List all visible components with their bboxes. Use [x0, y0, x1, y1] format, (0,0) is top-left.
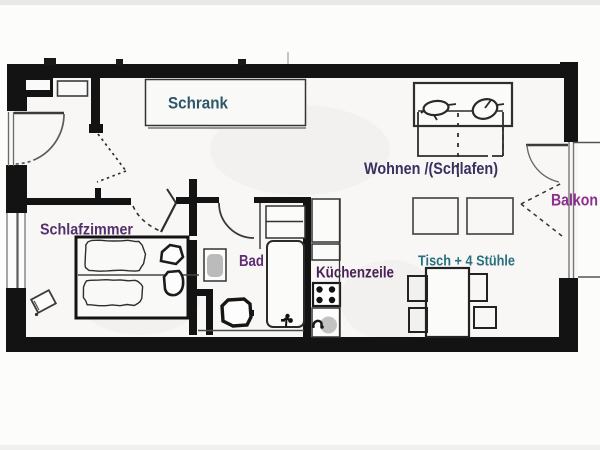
svg-text:Schlafzimmer: Schlafzimmer [40, 222, 133, 239]
svg-text:Wohnen /(Schlafen): Wohnen /(Schlafen) [364, 160, 498, 178]
svg-text:Bad: Bad [239, 253, 264, 270]
svg-text:Schrank: Schrank [168, 94, 228, 113]
svg-text:Balkon: Balkon [551, 192, 598, 210]
svg-text:Küchenzeile: Küchenzeile [316, 265, 394, 282]
